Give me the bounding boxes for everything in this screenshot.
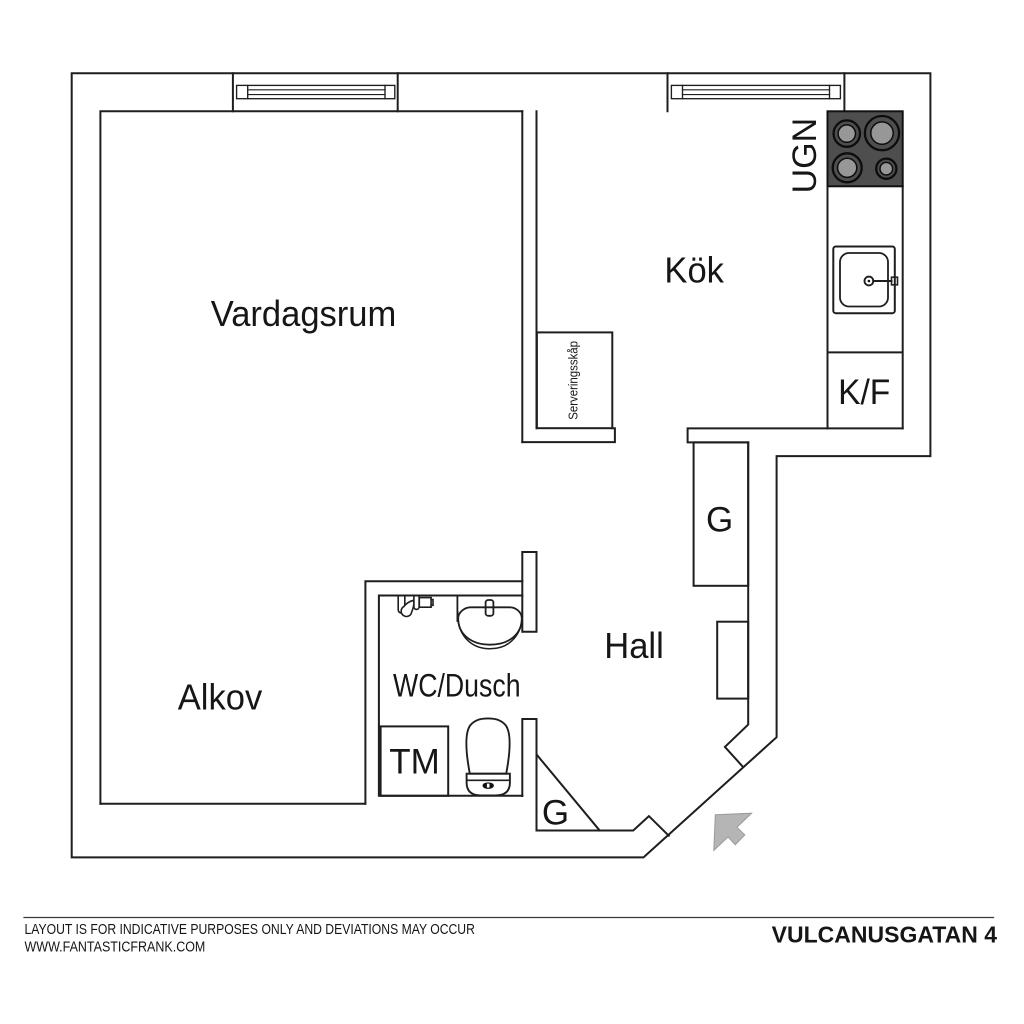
svg-text:TM: TM xyxy=(389,743,440,782)
svg-text:UGN: UGN xyxy=(786,118,824,194)
svg-text:Vardagsrum: Vardagsrum xyxy=(211,294,397,334)
svg-text:Hall: Hall xyxy=(604,626,664,666)
svg-text:Kök: Kök xyxy=(664,251,724,291)
svg-text:G: G xyxy=(542,794,569,833)
svg-text:K/F: K/F xyxy=(838,373,890,412)
svg-text:Serveringsskåp: Serveringsskåp xyxy=(566,341,581,420)
svg-text:LAYOUT IS FOR INDICATIVE PURPO: LAYOUT IS FOR INDICATIVE PURPOSES ONLY A… xyxy=(25,921,476,937)
svg-text:VULCANUSGATAN 4: VULCANUSGATAN 4 xyxy=(772,921,998,947)
svg-text:WC/Dusch: WC/Dusch xyxy=(393,668,520,704)
svg-text:G: G xyxy=(706,501,733,540)
svg-text:Alkov: Alkov xyxy=(178,678,263,718)
svg-text:WWW.FANTASTICFRANK.COM: WWW.FANTASTICFRANK.COM xyxy=(25,938,206,954)
